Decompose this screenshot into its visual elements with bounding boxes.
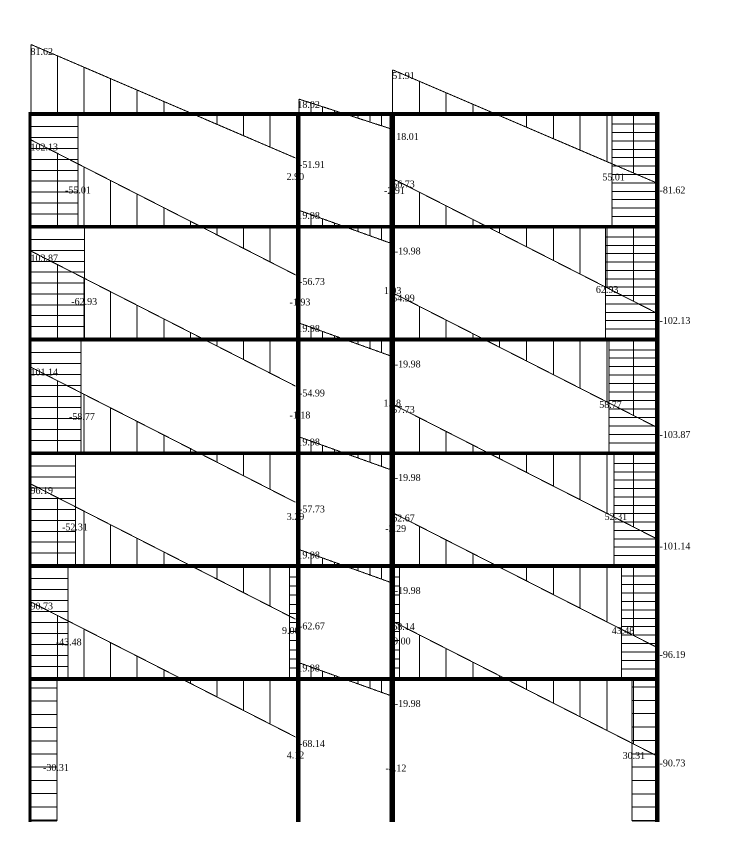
svg-text:19.98: 19.98 bbox=[297, 324, 320, 335]
svg-text:-52.31: -52.31 bbox=[62, 523, 88, 534]
svg-text:30.31: 30.31 bbox=[623, 751, 646, 762]
svg-text:-4.12: -4.12 bbox=[386, 763, 407, 774]
svg-text:51.91: 51.91 bbox=[392, 71, 415, 82]
svg-text:-103.87: -103.87 bbox=[660, 430, 691, 441]
svg-text:-58.77: -58.77 bbox=[69, 412, 95, 423]
svg-text:3.29: 3.29 bbox=[287, 512, 305, 523]
svg-text:81.62: 81.62 bbox=[31, 47, 54, 58]
svg-text:2.90: 2.90 bbox=[287, 172, 305, 183]
svg-text:-3.29: -3.29 bbox=[385, 524, 406, 535]
svg-text:-9.00: -9.00 bbox=[390, 636, 411, 647]
svg-text:-19.98: -19.98 bbox=[395, 247, 421, 258]
svg-text:-19.98: -19.98 bbox=[395, 586, 421, 597]
svg-text:4.12: 4.12 bbox=[287, 751, 305, 762]
svg-text:90.73: 90.73 bbox=[31, 602, 54, 613]
svg-text:-62.67: -62.67 bbox=[299, 621, 325, 632]
svg-text:-81.62: -81.62 bbox=[660, 186, 686, 197]
svg-text:19.98: 19.98 bbox=[297, 550, 320, 561]
svg-text:-101.14: -101.14 bbox=[660, 542, 691, 553]
svg-text:-90.73: -90.73 bbox=[660, 759, 686, 770]
svg-text:102.13: 102.13 bbox=[31, 143, 59, 154]
svg-text:-54.99: -54.99 bbox=[299, 388, 325, 399]
svg-text:-102.13: -102.13 bbox=[660, 316, 691, 327]
svg-text:-43.48: -43.48 bbox=[56, 637, 82, 648]
svg-text:-68.14: -68.14 bbox=[299, 739, 325, 750]
svg-text:18.02: 18.02 bbox=[297, 100, 320, 111]
svg-text:19.98: 19.98 bbox=[297, 664, 320, 675]
svg-text:-30.31: -30.31 bbox=[43, 763, 69, 774]
svg-text:-96.19: -96.19 bbox=[660, 650, 686, 661]
svg-text:68.14: 68.14 bbox=[392, 622, 415, 633]
svg-text:55.01: 55.01 bbox=[602, 173, 625, 184]
svg-text:101.14: 101.14 bbox=[31, 368, 59, 379]
svg-text:-56.73: -56.73 bbox=[299, 277, 325, 288]
svg-text:-19.98: -19.98 bbox=[395, 473, 421, 484]
svg-text:-2.91: -2.91 bbox=[384, 186, 405, 197]
svg-text:19.98: 19.98 bbox=[297, 438, 320, 449]
svg-text:1.93: 1.93 bbox=[384, 286, 402, 297]
svg-text:-55.01: -55.01 bbox=[65, 186, 91, 197]
svg-text:-62.93: -62.93 bbox=[71, 297, 97, 308]
svg-text:-19.98: -19.98 bbox=[395, 699, 421, 710]
svg-text:-1.93: -1.93 bbox=[290, 298, 311, 309]
svg-text:103.87: 103.87 bbox=[31, 254, 59, 265]
svg-text:43.48: 43.48 bbox=[612, 626, 635, 637]
svg-text:52.31: 52.31 bbox=[605, 512, 628, 523]
svg-text:-51.91: -51.91 bbox=[299, 160, 325, 171]
svg-text:58.77: 58.77 bbox=[599, 400, 622, 411]
svg-text:96.19: 96.19 bbox=[31, 486, 54, 497]
svg-text:62.93: 62.93 bbox=[596, 285, 619, 296]
svg-text:1.18: 1.18 bbox=[384, 398, 402, 409]
svg-text:-19.98: -19.98 bbox=[395, 359, 421, 370]
svg-text:19.98: 19.98 bbox=[297, 211, 320, 222]
svg-text:9.00: 9.00 bbox=[282, 626, 300, 637]
svg-text:18.01: 18.01 bbox=[396, 132, 419, 143]
svg-text:-1.18: -1.18 bbox=[290, 411, 311, 422]
